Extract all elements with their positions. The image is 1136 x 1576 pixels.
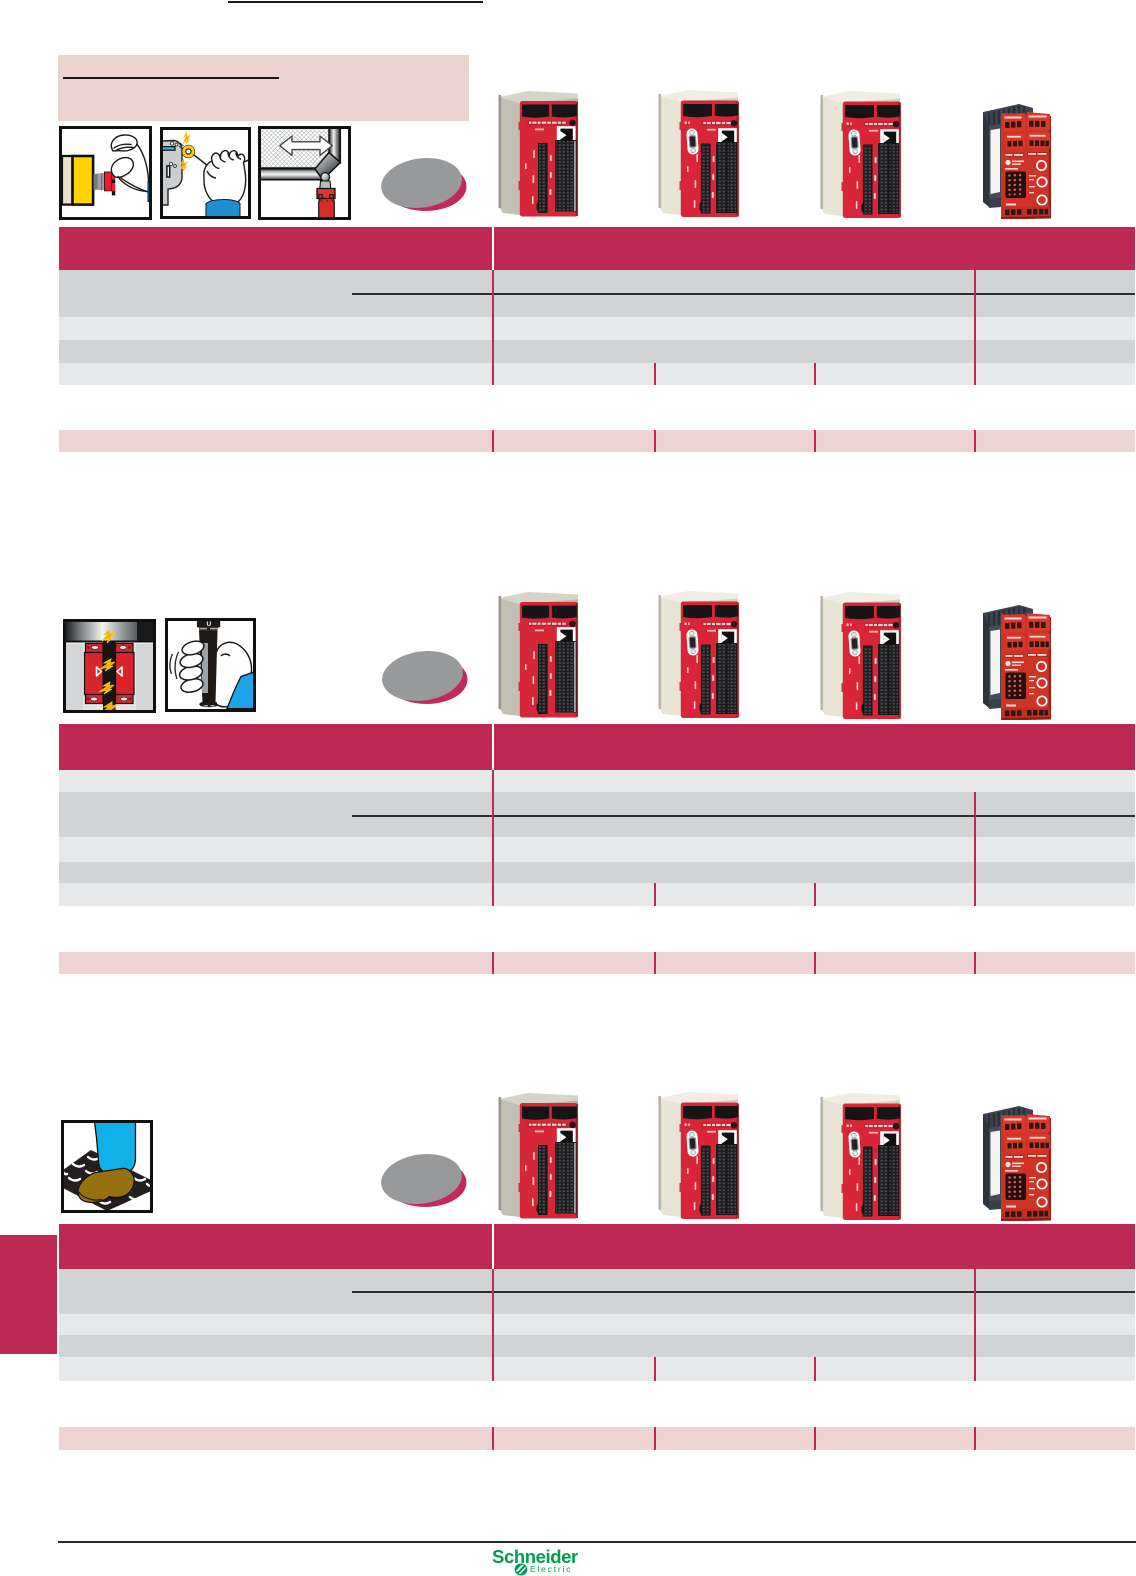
svg-text:U: U [206, 621, 211, 628]
